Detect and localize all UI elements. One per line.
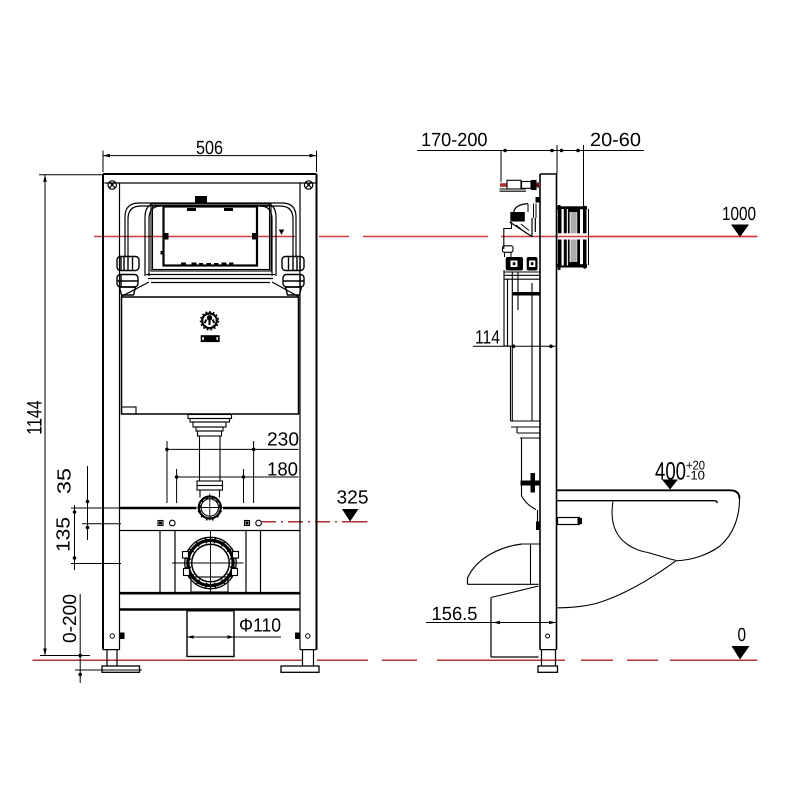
svg-text:1000: 1000 [722, 204, 756, 225]
svg-text:-10: -10 [686, 469, 705, 483]
svg-text:1144: 1144 [24, 400, 47, 435]
svg-text:170-200: 170-200 [421, 130, 488, 151]
svg-text:325: 325 [337, 488, 369, 509]
svg-text:20-60: 20-60 [590, 130, 641, 151]
svg-text:400: 400 [655, 458, 686, 486]
svg-text:35: 35 [55, 468, 76, 494]
svg-text:180: 180 [267, 460, 298, 481]
svg-text:114: 114 [475, 328, 500, 349]
svg-text:0-200: 0-200 [60, 594, 81, 643]
svg-text:135: 135 [54, 517, 75, 552]
svg-text:0: 0 [738, 625, 747, 646]
svg-text:506: 506 [196, 138, 223, 159]
svg-text:156.5: 156.5 [432, 604, 478, 625]
svg-text:230: 230 [267, 430, 299, 451]
svg-text:Φ110: Φ110 [239, 616, 281, 637]
